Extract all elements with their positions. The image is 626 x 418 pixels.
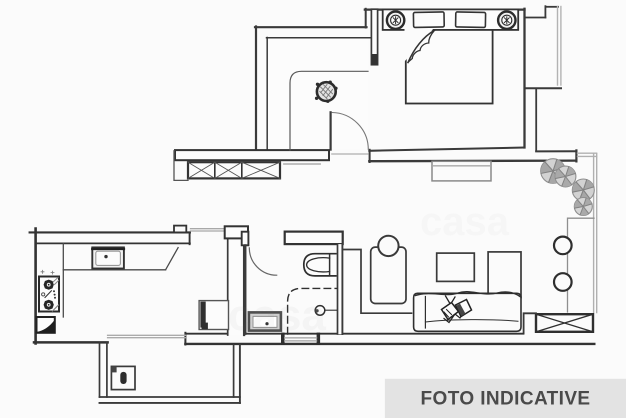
- svg-text:casa: casa: [420, 200, 510, 244]
- svg-text:casa: casa: [228, 291, 326, 340]
- svg-text:FOTO INDICATIVE: FOTO INDICATIVE: [421, 389, 591, 410]
